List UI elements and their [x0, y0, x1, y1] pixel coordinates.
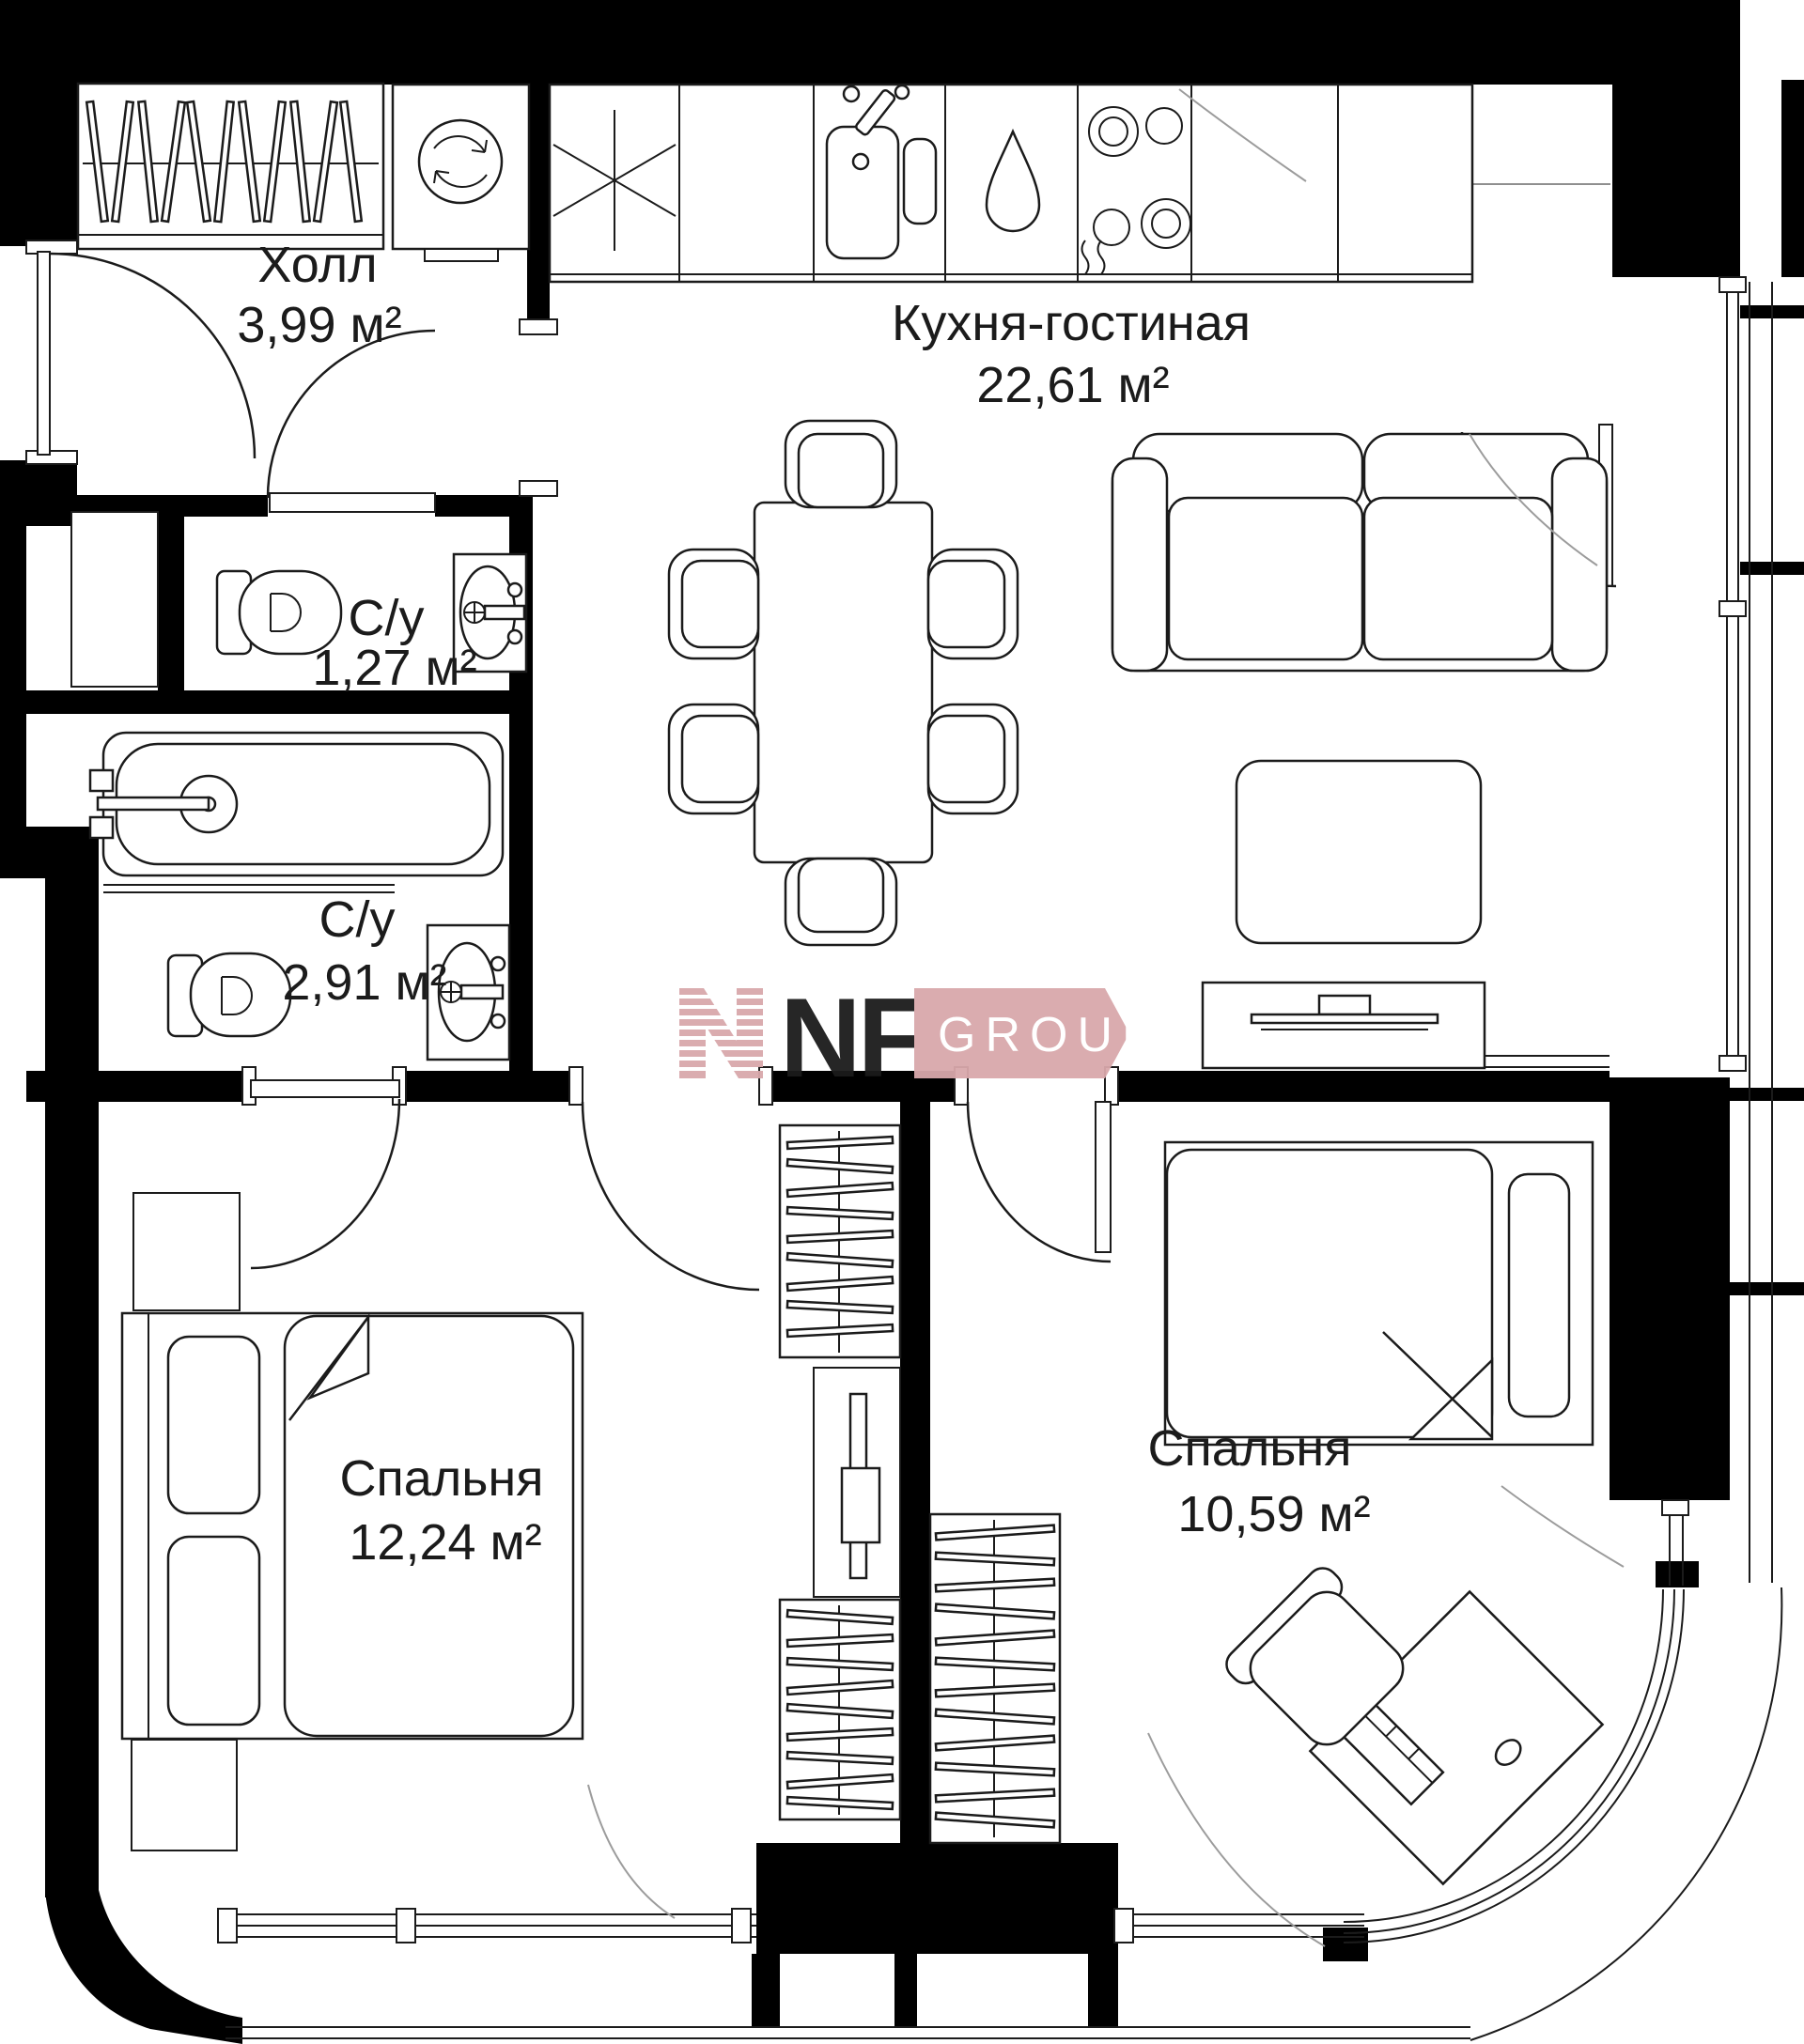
hall-label: Холл	[257, 237, 377, 293]
hall-area: 3,99 м²	[237, 297, 401, 353]
blanket	[1167, 1150, 1492, 1437]
pillow	[168, 1337, 259, 1513]
nightstand	[133, 1193, 240, 1310]
single-bed	[1165, 1142, 1593, 1445]
curved-wall-bottom-left	[45, 1890, 242, 2044]
bedroom1-door	[569, 1067, 772, 1290]
bathroom-big-area: 2,91 м²	[282, 954, 446, 1011]
bedroom2-label: Спальня	[1148, 1420, 1352, 1477]
bedroom2-area: 10,59 м²	[1177, 1486, 1370, 1542]
washing-machine-icon	[393, 85, 529, 261]
bedroom1-area: 12,24 м²	[349, 1514, 541, 1571]
tv-console	[1203, 983, 1485, 1068]
bench	[132, 1740, 237, 1850]
kitchen-living-area: 22,61 м²	[976, 357, 1169, 413]
logo-word: GROUP	[938, 1008, 1164, 1062]
bathtub-icon	[90, 733, 503, 892]
logo-letters: NF	[780, 975, 923, 1101]
toilet-icon	[168, 953, 290, 1036]
pillow	[168, 1537, 259, 1725]
bathroom-small-door	[268, 331, 435, 512]
bathroom-big-door	[242, 1067, 406, 1268]
coffee-table	[1236, 761, 1481, 943]
bathroom-small-area: 1,27 м²	[312, 640, 476, 696]
sofa	[1112, 434, 1607, 671]
wardrobe	[780, 1125, 900, 1357]
bathroom-small: С/у 1,27 м²	[71, 512, 526, 696]
bedroom2: Спальня 10,59 м²	[930, 1142, 1624, 1946]
bathroom-small-label: С/у	[349, 590, 425, 646]
entry-closet	[78, 84, 383, 249]
shaft	[71, 512, 158, 687]
dining-table	[754, 503, 932, 862]
bathroom-big-label: С/у	[319, 891, 396, 948]
bedroom2-door	[955, 1067, 1118, 1262]
kitchen-counter	[550, 85, 1472, 282]
pillow	[1509, 1174, 1569, 1417]
bedroom1-label: Спальня	[340, 1450, 544, 1507]
logo-n-symbol	[675, 988, 769, 1078]
bathroom-big: С/у 2,91 м²	[90, 733, 509, 1060]
entrance-door	[26, 240, 255, 464]
hall: Холл 3,99 м²	[78, 84, 529, 353]
nf-group-logo: NF GROUP	[675, 975, 1164, 1101]
wardrobe	[780, 1600, 900, 1819]
tv-panel	[814, 1368, 900, 1597]
kitchen-living-label: Кухня-гостиная	[892, 295, 1251, 351]
floor-plan: Холл 3,99 м²	[0, 0, 1804, 2044]
wardrobe	[930, 1514, 1060, 1843]
bedroom1: Спальня 12,24 м²	[122, 1125, 900, 1918]
